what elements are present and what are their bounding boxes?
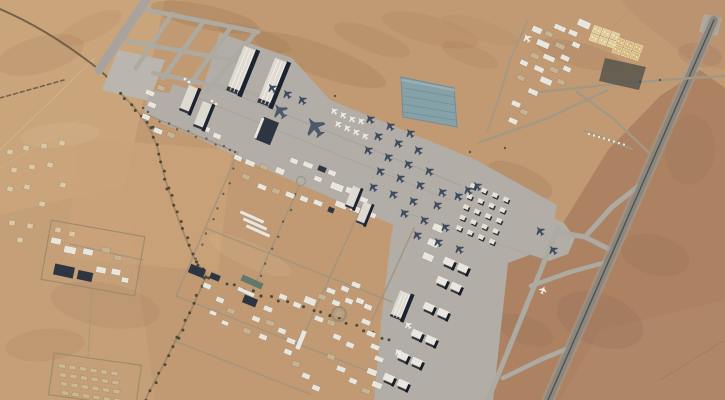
- vehicle: [608, 139, 610, 141]
- tree: [188, 311, 191, 314]
- tree: [234, 151, 236, 153]
- tree: [387, 338, 390, 341]
- tree: [164, 363, 167, 366]
- hut: [29, 164, 36, 170]
- equipment-pad-dot: [595, 38, 597, 40]
- hut: [9, 220, 16, 226]
- tree: [328, 314, 331, 317]
- vehicle: [603, 137, 605, 139]
- equipment-pad-dot: [630, 45, 632, 47]
- vehicle: [469, 151, 471, 153]
- tree: [277, 236, 279, 238]
- equipment-pad-dot: [592, 36, 594, 38]
- tree: [130, 103, 133, 106]
- tree: [157, 372, 160, 375]
- vehicle: [588, 133, 590, 135]
- equipment-pad-dot: [598, 30, 600, 32]
- vehicle: [147, 111, 149, 113]
- tree: [172, 204, 175, 207]
- hut: [11, 167, 18, 173]
- hut: [7, 186, 14, 192]
- tree: [205, 232, 207, 234]
- vehicle: [211, 100, 214, 103]
- satellite-image: [0, 0, 725, 400]
- tree: [271, 247, 273, 249]
- tree: [134, 109, 137, 112]
- tree: [163, 178, 166, 181]
- tree: [282, 220, 284, 222]
- tree: [286, 300, 289, 303]
- satellite-scene: [0, 0, 725, 400]
- tree: [181, 329, 184, 332]
- hut: [23, 145, 30, 151]
- tree: [212, 218, 214, 220]
- hut: [55, 227, 62, 233]
- vehicle: [184, 78, 187, 81]
- tree: [355, 324, 358, 327]
- tree: [191, 253, 194, 256]
- equipment-pad-dot: [604, 31, 606, 33]
- tree: [167, 354, 170, 357]
- tree: [313, 309, 316, 312]
- hut: [39, 201, 46, 207]
- tree: [159, 160, 162, 163]
- tree: [152, 136, 155, 139]
- tree: [187, 130, 189, 132]
- hut: [24, 184, 31, 190]
- vehicle: [142, 107, 144, 109]
- tree: [252, 289, 254, 291]
- tree: [181, 227, 184, 230]
- vehicle: [598, 136, 600, 138]
- hut: [59, 140, 66, 146]
- equipment-pad-dot: [636, 56, 638, 58]
- water-tank: [297, 177, 306, 186]
- equipment-pad-dot: [601, 39, 603, 41]
- tree: [171, 194, 174, 197]
- tree: [214, 143, 216, 145]
- tree: [176, 128, 178, 130]
- tree: [264, 263, 266, 265]
- hut: [69, 231, 76, 237]
- tree: [229, 182, 231, 184]
- vehicle: [613, 140, 615, 142]
- tree: [205, 137, 207, 139]
- tree: [195, 136, 197, 138]
- tree: [233, 283, 236, 286]
- tree: [188, 244, 191, 247]
- tree: [184, 319, 187, 322]
- vehicle: [229, 149, 231, 151]
- tree: [193, 302, 196, 305]
- tree: [165, 187, 168, 190]
- tree: [201, 243, 203, 245]
- tree: [155, 381, 158, 384]
- tree: [270, 295, 273, 298]
- equipment-pad-dot: [615, 48, 617, 50]
- hut: [7, 149, 14, 155]
- tree: [194, 257, 196, 259]
- equipment-pad-dot: [613, 34, 615, 36]
- vehicle: [659, 79, 661, 81]
- tree: [157, 153, 160, 156]
- equipment-pad-dot: [607, 33, 609, 35]
- tree: [176, 210, 179, 213]
- tree: [302, 305, 305, 308]
- tree: [148, 389, 151, 392]
- hut: [60, 182, 67, 188]
- tree: [277, 299, 280, 302]
- vehicle: [593, 134, 595, 136]
- vehicle: [215, 103, 218, 106]
- tree: [158, 120, 160, 122]
- equipment-pad-dot: [633, 54, 635, 56]
- vehicle: [334, 95, 336, 97]
- tree: [232, 167, 234, 169]
- equipment-pad-dot: [636, 46, 638, 48]
- vehicle: [639, 81, 641, 83]
- tree: [180, 220, 183, 223]
- tree: [195, 294, 198, 297]
- tree: [259, 295, 262, 298]
- hut: [27, 223, 34, 229]
- equipment-pad-dot: [604, 41, 606, 43]
- tree: [223, 145, 225, 147]
- vehicle: [618, 142, 620, 144]
- tree: [156, 143, 159, 146]
- vehicle: [623, 143, 625, 145]
- water-tank: [336, 311, 342, 317]
- tree: [171, 345, 174, 348]
- hut: [17, 237, 24, 243]
- tree: [290, 209, 292, 211]
- tree: [222, 193, 224, 195]
- tree: [177, 337, 180, 340]
- hut: [47, 162, 54, 168]
- tree: [319, 310, 322, 313]
- equipment-pad-dot: [595, 28, 597, 30]
- scene-layers: [0, 0, 725, 400]
- equipment-pad-dot: [618, 50, 620, 52]
- vehicle: [504, 147, 506, 149]
- tree: [345, 322, 348, 325]
- tree: [168, 122, 170, 124]
- tree: [260, 275, 262, 277]
- tree: [119, 92, 122, 95]
- equipment-pad-dot: [639, 48, 641, 50]
- equipment-pad-dot: [618, 40, 620, 42]
- hut: [41, 143, 48, 149]
- equipment-pad-dot: [627, 53, 629, 55]
- tree: [216, 207, 218, 209]
- equipment-pad-dot: [624, 51, 626, 53]
- vehicle: [188, 81, 191, 84]
- equipment-pad-dot: [610, 42, 612, 44]
- tree: [186, 236, 189, 239]
- tree: [362, 329, 365, 332]
- tree: [381, 337, 384, 340]
- tree: [163, 170, 166, 173]
- tree: [123, 97, 126, 100]
- equipment-pad-dot: [627, 43, 629, 45]
- tree: [195, 260, 198, 263]
- tree: [226, 283, 229, 286]
- tree: [146, 121, 149, 124]
- equipment-pad-dot: [621, 42, 623, 44]
